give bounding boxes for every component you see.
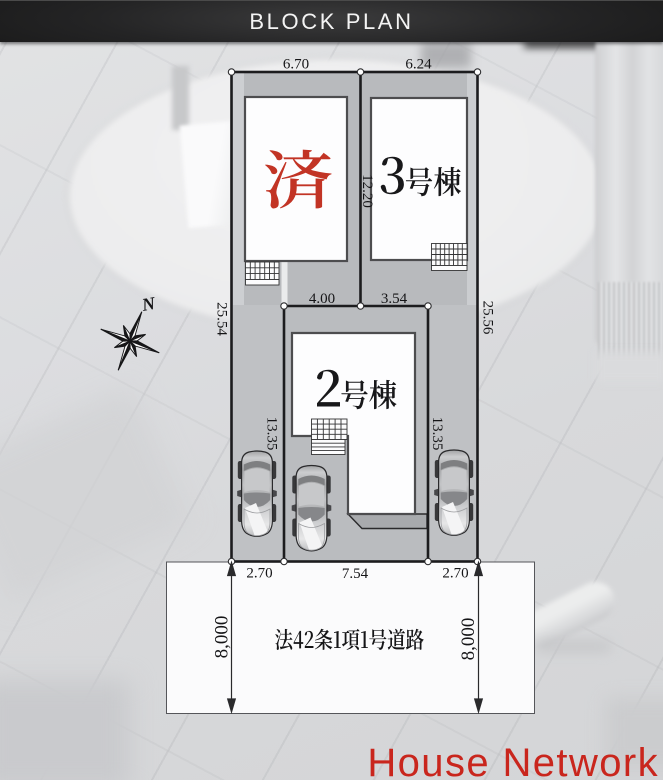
- svg-text:25.54: 25.54: [214, 302, 230, 336]
- svg-text:13.35: 13.35: [264, 417, 280, 451]
- svg-text:8,000: 8,000: [212, 616, 233, 659]
- svg-text:6.24: 6.24: [405, 57, 432, 73]
- svg-text:2.70: 2.70: [442, 566, 468, 582]
- svg-text:7.54: 7.54: [342, 566, 369, 582]
- svg-text:2.70: 2.70: [246, 566, 272, 582]
- svg-text:N: N: [139, 293, 157, 315]
- svg-text:13.35: 13.35: [429, 417, 445, 451]
- svg-text:6.70: 6.70: [283, 57, 309, 73]
- svg-text:3.54: 3.54: [381, 291, 408, 307]
- svg-text:8,000: 8,000: [458, 618, 479, 661]
- svg-text:4.00: 4.00: [309, 291, 335, 307]
- svg-text:12.20: 12.20: [359, 174, 375, 208]
- svg-text:25.56: 25.56: [480, 301, 496, 335]
